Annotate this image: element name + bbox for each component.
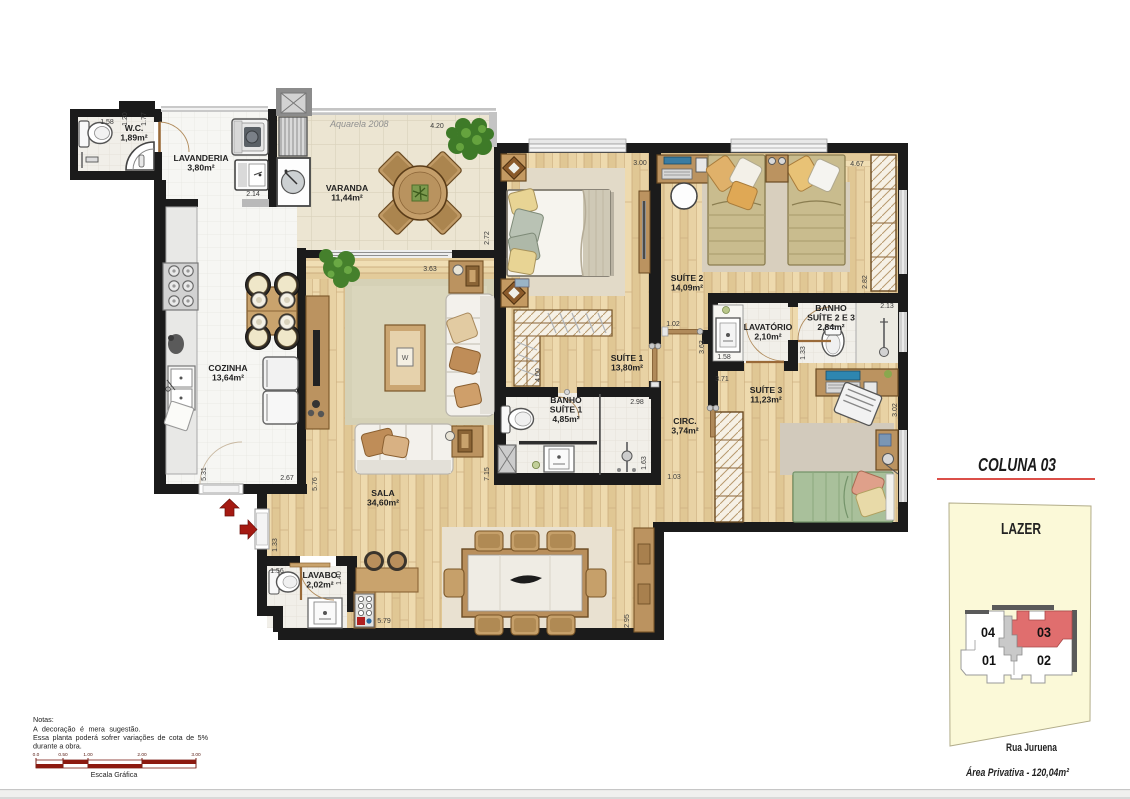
svg-text:LAVATÓRIO: LAVATÓRIO bbox=[744, 321, 793, 332]
svg-text:0.50: 0.50 bbox=[58, 752, 68, 758]
svg-text:03: 03 bbox=[1037, 624, 1051, 640]
svg-text:2.13: 2.13 bbox=[880, 303, 894, 310]
svg-text:1.58: 1.58 bbox=[100, 119, 114, 126]
svg-text:1.40: 1.40 bbox=[336, 571, 343, 585]
svg-text:4.67: 4.67 bbox=[850, 161, 864, 168]
svg-text:2,10m²: 2,10m² bbox=[754, 331, 781, 341]
svg-text:4,85m²: 4,85m² bbox=[552, 414, 579, 424]
svg-text:1.63: 1.63 bbox=[641, 456, 648, 470]
svg-text:5.79: 5.79 bbox=[377, 618, 391, 625]
svg-text:11,44m²: 11,44m² bbox=[331, 192, 363, 202]
svg-text:Escala Gráfica: Escala Gráfica bbox=[91, 770, 138, 779]
svg-text:3,80m²: 3,80m² bbox=[187, 162, 214, 172]
svg-text:2.72: 2.72 bbox=[484, 231, 491, 245]
svg-text:1,89m²: 1,89m² bbox=[120, 132, 147, 142]
svg-text:01: 01 bbox=[982, 652, 996, 668]
svg-text:2.00: 2.00 bbox=[137, 752, 147, 758]
svg-text:1.58: 1.58 bbox=[717, 354, 731, 361]
svg-text:1.33: 1.33 bbox=[800, 346, 807, 360]
svg-text:2,84m²: 2,84m² bbox=[817, 322, 844, 332]
svg-text:1.20: 1.20 bbox=[122, 112, 129, 126]
svg-text:7.15: 7.15 bbox=[484, 467, 491, 481]
svg-text:Aquarela 2008: Aquarela 2008 bbox=[329, 119, 389, 129]
svg-text:Notas:: Notas: bbox=[33, 715, 54, 724]
svg-text:02: 02 bbox=[1037, 652, 1051, 668]
svg-text:1.33: 1.33 bbox=[272, 538, 279, 552]
svg-text:3.63: 3.63 bbox=[699, 340, 706, 354]
svg-text:13,80m²: 13,80m² bbox=[611, 362, 643, 372]
svg-text:2.82: 2.82 bbox=[862, 275, 869, 289]
svg-text:3.63: 3.63 bbox=[423, 266, 437, 273]
svg-text:13,64m²: 13,64m² bbox=[212, 372, 244, 382]
svg-text:3,74m²: 3,74m² bbox=[671, 425, 698, 435]
svg-text:4.60: 4.60 bbox=[535, 368, 542, 382]
svg-text:1.03: 1.03 bbox=[667, 474, 681, 481]
svg-text:3.00: 3.00 bbox=[633, 160, 647, 167]
svg-text:2.14: 2.14 bbox=[246, 191, 260, 198]
svg-text:34,60m²: 34,60m² bbox=[367, 497, 399, 507]
svg-text:2.67: 2.67 bbox=[280, 475, 294, 482]
svg-text:3.00: 3.00 bbox=[191, 752, 201, 758]
svg-text:5.31: 5.31 bbox=[201, 467, 208, 481]
svg-text:Área Privativa - 120,04m²: Área Privativa - 120,04m² bbox=[965, 766, 1069, 779]
svg-text:COLUNA 03: COLUNA 03 bbox=[978, 455, 1056, 475]
svg-text:2,02m²: 2,02m² bbox=[306, 579, 333, 589]
svg-text:1.00: 1.00 bbox=[83, 752, 93, 758]
svg-text:2.98: 2.98 bbox=[630, 399, 644, 406]
svg-text:durante a obra.: durante a obra. bbox=[33, 742, 82, 751]
svg-text:5.76: 5.76 bbox=[312, 477, 319, 491]
svg-text:1.02: 1.02 bbox=[666, 321, 680, 328]
svg-text:LAZER: LAZER bbox=[1001, 521, 1041, 538]
svg-text:04: 04 bbox=[981, 624, 995, 640]
svg-text:1.56: 1.56 bbox=[270, 568, 284, 575]
svg-text:2.95: 2.95 bbox=[624, 614, 631, 628]
svg-text:W: W bbox=[402, 355, 409, 362]
svg-text:3.71: 3.71 bbox=[715, 376, 729, 383]
svg-text:3.02: 3.02 bbox=[892, 403, 899, 417]
svg-text:4.20: 4.20 bbox=[430, 123, 444, 130]
svg-text:14,09m²: 14,09m² bbox=[671, 282, 703, 292]
svg-text:Rua Juruena: Rua Juruena bbox=[1006, 742, 1058, 754]
svg-text:11,23m²: 11,23m² bbox=[750, 394, 782, 404]
svg-text:1.77: 1.77 bbox=[141, 112, 148, 126]
svg-text:0.0: 0.0 bbox=[33, 752, 40, 758]
